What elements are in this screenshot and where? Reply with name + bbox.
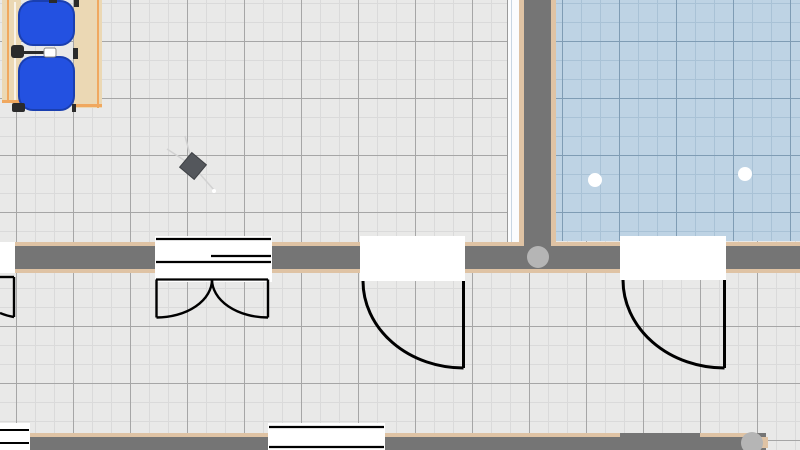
door-single-1[interactable] xyxy=(360,236,465,368)
object-top xyxy=(180,153,207,180)
office-chair-1[interactable] xyxy=(19,1,74,45)
desk-edge-line xyxy=(7,0,9,103)
plan-overlay xyxy=(0,0,800,450)
office-chair-2[interactable] xyxy=(19,57,74,110)
wall-edge xyxy=(519,0,524,242)
door-opening xyxy=(155,236,272,282)
wall-edge xyxy=(551,0,556,242)
indicator-arm xyxy=(24,51,46,54)
wall-vertical[interactable] xyxy=(519,0,556,246)
ceiling-light-2[interactable] xyxy=(738,167,752,181)
window-opening xyxy=(0,423,30,450)
desk-edge-line xyxy=(97,0,99,108)
desk-edge-line xyxy=(74,104,102,107)
drag-handle[interactable] xyxy=(44,48,56,57)
indicator-dot xyxy=(11,45,24,58)
guide-handle xyxy=(212,189,216,193)
door-double[interactable] xyxy=(155,236,272,318)
desk-edge-line xyxy=(2,100,21,103)
door-swing xyxy=(363,281,464,368)
window-2[interactable] xyxy=(268,423,385,450)
wall-body xyxy=(524,0,551,246)
door-swing xyxy=(0,277,14,317)
indicator-dot xyxy=(49,0,57,3)
door-opening xyxy=(0,242,15,273)
desk-right[interactable] xyxy=(74,0,102,108)
door-edge-left[interactable] xyxy=(0,242,15,317)
door-swing xyxy=(623,280,725,368)
indicator-dot xyxy=(73,48,78,59)
indicator-dot xyxy=(12,103,25,112)
ceiling-light-1[interactable] xyxy=(588,173,602,187)
door-swing xyxy=(157,280,269,318)
rotated-object[interactable] xyxy=(167,136,216,193)
floor-plan-canvas[interactable] xyxy=(0,0,800,450)
door-opening xyxy=(620,236,726,280)
wall-junction-dot[interactable] xyxy=(527,246,549,268)
indicator-dot xyxy=(72,104,76,112)
chair-seat xyxy=(19,57,74,110)
chair-seat xyxy=(19,1,74,45)
door-single-2[interactable] xyxy=(620,236,726,368)
door-opening xyxy=(360,236,465,281)
indicator-dot xyxy=(74,0,79,7)
window-1[interactable] xyxy=(0,423,30,450)
